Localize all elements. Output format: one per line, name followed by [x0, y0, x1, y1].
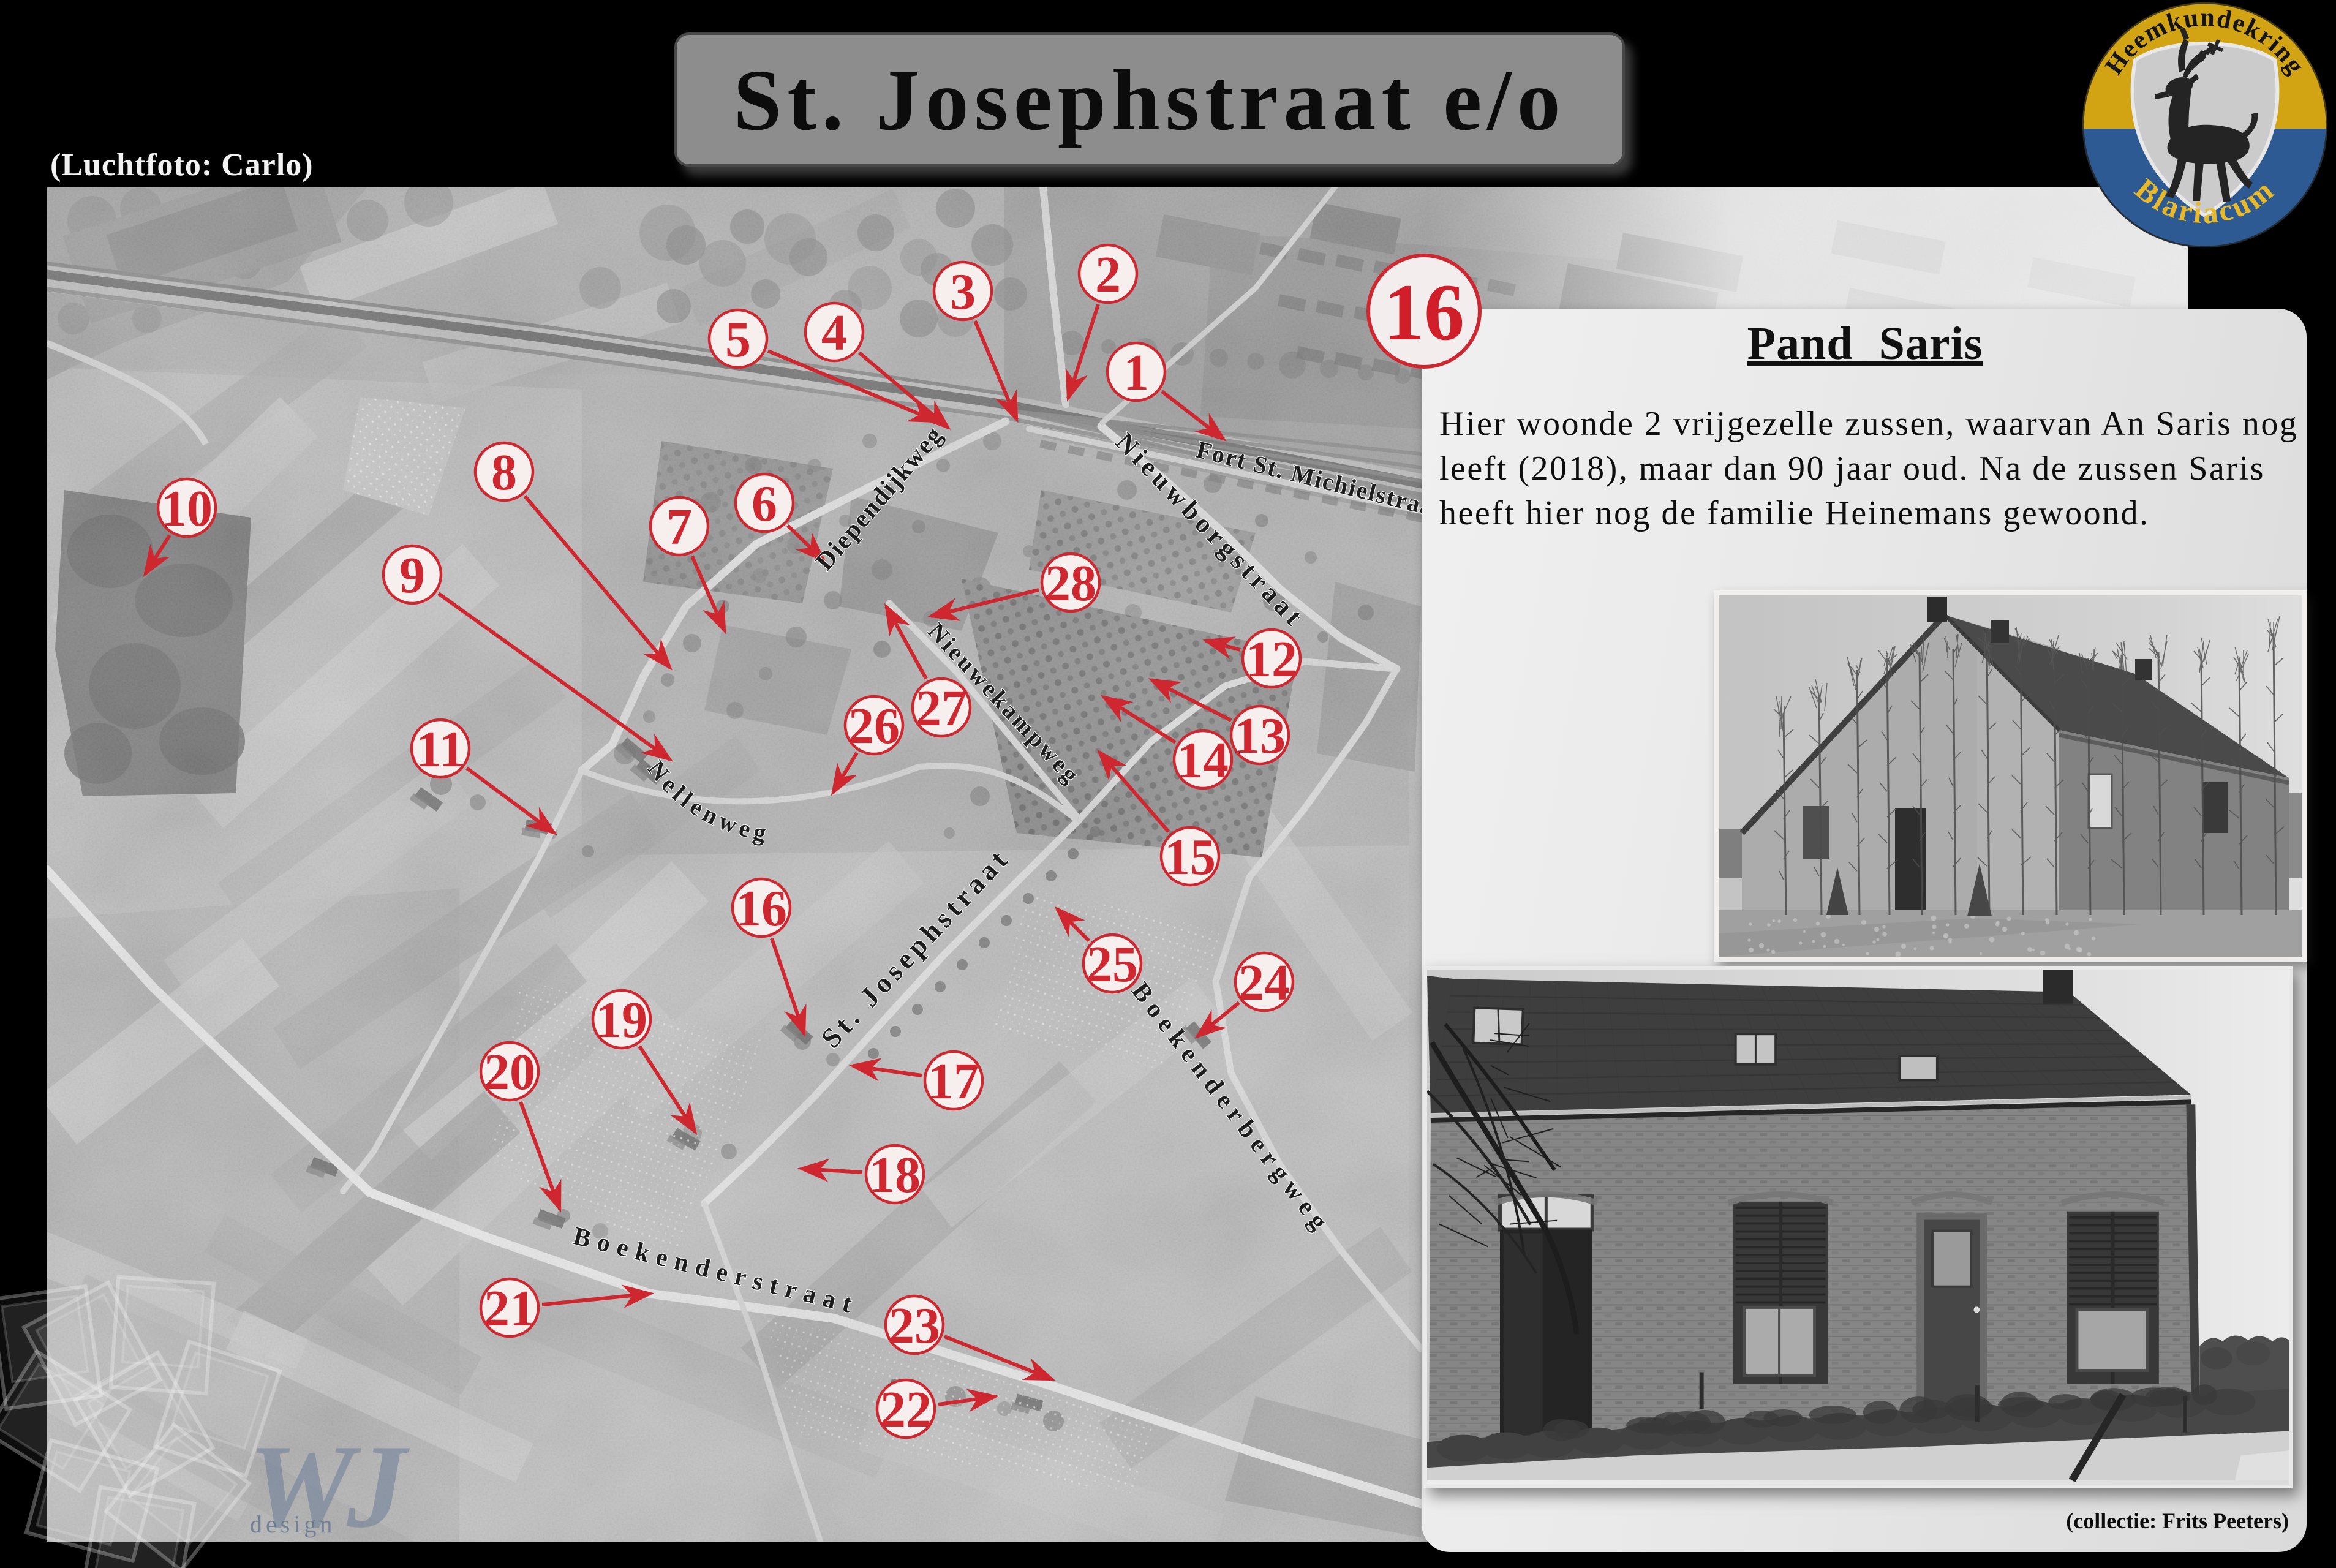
- svg-text:16: 16: [1384, 267, 1464, 357]
- svg-text:design: design: [250, 1510, 336, 1538]
